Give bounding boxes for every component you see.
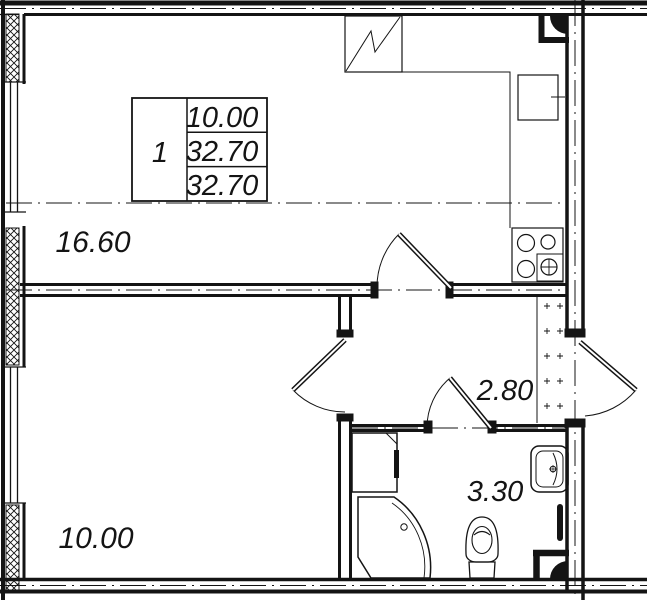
kitchen-fixtures (345, 14, 569, 282)
room-area-label-hallway: 2.80 (476, 375, 533, 407)
shaft-area (544, 303, 563, 409)
fridge-icon (345, 16, 402, 72)
kitchen-counter (345, 72, 510, 228)
door-jamb (565, 419, 585, 427)
kitchen-sink-icon (518, 75, 565, 120)
bathroom-fixtures (352, 433, 569, 579)
wall-pier-hatch (6, 505, 19, 592)
table-cell-room-count: 1 (152, 137, 168, 169)
toilet-icon (466, 517, 498, 578)
door-jamb (337, 414, 353, 421)
door-jamb (424, 421, 432, 433)
window-living-room (3, 82, 26, 212)
floor-plan: 1 10.00 32.70 32.70 16.60 10.00 2.80 3.3… (0, 0, 647, 600)
info-table: 1 10.00 32.70 32.70 (132, 98, 267, 202)
room-area-label-bathroom: 3.30 (467, 476, 523, 508)
bathroom-sink-icon (531, 446, 568, 492)
wall-pier-hatch (6, 228, 19, 365)
shower-icon (358, 497, 431, 578)
table-cell-living-area: 10.00 (186, 102, 259, 134)
table-cell-area: 32.70 (186, 136, 259, 168)
door-bedroom (293, 340, 345, 412)
wall-pier-hatch (6, 14, 19, 82)
door-jamb (337, 330, 353, 337)
door-living-room (377, 234, 451, 288)
washing-machine-icon (352, 433, 399, 492)
axis-lines (0, 0, 647, 600)
towel-rail-icon (557, 504, 563, 541)
room-area-label-bedroom: 10.00 (58, 522, 133, 555)
room-area-label-living-kitchen: 16.60 (55, 226, 130, 259)
vent-shaft-bottom-icon (533, 550, 569, 579)
floor-plan-page: 1 10.00 32.70 32.70 16.60 10.00 2.80 3.3… (0, 0, 647, 600)
window-bedroom (3, 367, 26, 503)
stove-icon (512, 228, 563, 282)
vent-shaft-top-icon (539, 14, 569, 43)
exterior-walls (0, 0, 647, 600)
door-entrance (580, 342, 636, 416)
table-cell-total-area: 32.70 (186, 170, 259, 202)
door-jamb (565, 329, 585, 337)
